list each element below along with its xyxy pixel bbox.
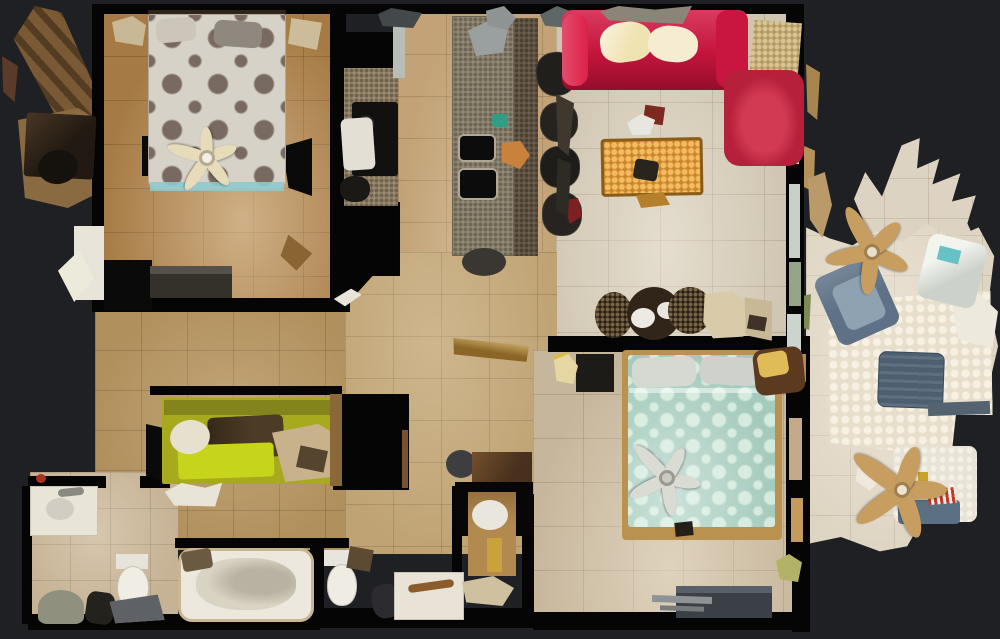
sink-basin-top: [458, 134, 496, 162]
red-spot: [36, 474, 46, 483]
closet-shelf-edge: [402, 430, 408, 488]
closet-void: [333, 394, 409, 490]
bench-dark-bit: [747, 315, 767, 332]
kettle-dark: [340, 176, 370, 202]
bed3-pillow-right: [699, 355, 760, 386]
side-table-mosaic: [750, 20, 802, 76]
master-tv-dark: [576, 354, 614, 392]
mirror-shard-3: [789, 184, 800, 258]
kitchen-island-bar-ledge: [514, 18, 538, 256]
sofa-armrest-left: [562, 14, 588, 86]
ceiling-fan-bedroom1-hub: [199, 150, 215, 166]
ceiling-fan-patio-top-hub: [864, 244, 880, 260]
soap-dispenser: [492, 114, 508, 127]
tub-towel-dark: [346, 546, 373, 572]
ceiling-fan-patio-bottom-hub: [894, 482, 910, 498]
mirror-shard-6: [789, 418, 802, 480]
ceiling-fan-bedroom1: [165, 116, 249, 200]
wall-bedroom2-top: [150, 386, 342, 395]
bed2-top-band: [164, 400, 337, 415]
wall-kitchen-stove-top: [344, 32, 400, 70]
hall-floor-torn-bit: [462, 576, 514, 606]
sink-basin-bottom: [458, 168, 498, 200]
patio-planter-band: [928, 401, 990, 416]
dollhouse-3d-floorplan-view[interactable]: [0, 0, 1000, 639]
bed1-pillow-left: [155, 16, 197, 43]
bed3-pillow-left: [631, 355, 696, 388]
bed3-sheet-fold: [629, 388, 774, 393]
ceiling-fan-master-hub: [659, 470, 675, 486]
patio-wall-strip-a: [806, 64, 820, 120]
coffee-table-item: [632, 158, 659, 182]
mirror-shard-7: [791, 498, 803, 542]
bedroom1-void-bottomleft: [104, 260, 152, 310]
bath2-sink-white: [472, 500, 508, 530]
left-wall-fragment: [2, 56, 18, 102]
ceiling-fan-patio-bottom: [840, 428, 964, 552]
bath1-sink: [46, 498, 74, 520]
stove-white-pot: [340, 117, 376, 171]
bath2-vanity: [394, 572, 464, 620]
bath2-towel-gold: [487, 538, 502, 572]
bed2-headboard: [330, 394, 342, 486]
armchair-red: [724, 70, 804, 166]
bath1-rug: [38, 590, 84, 624]
dresser-bedroom1: [150, 266, 232, 298]
bed1-pillow-right: [213, 19, 263, 48]
ceiling-fan-master: [621, 432, 713, 524]
mirror-shard-4: [789, 262, 801, 306]
ceiling-fan-patio-top: [818, 198, 926, 306]
patio-ottoman: [877, 351, 945, 409]
island-end-stool: [462, 248, 506, 276]
toilet2-bowl: [327, 564, 357, 606]
hall-desk: [472, 452, 532, 484]
